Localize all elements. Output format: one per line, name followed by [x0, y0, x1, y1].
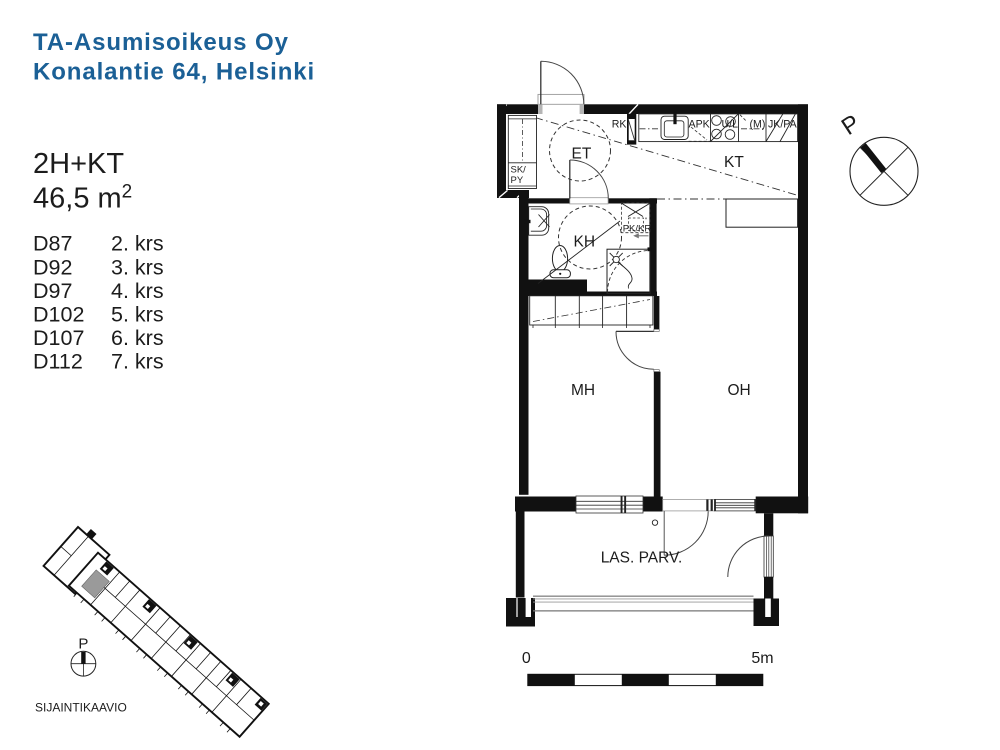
svg-text:D97: D97 — [33, 279, 72, 303]
svg-text:SK/: SK/ — [511, 165, 527, 176]
svg-text:U/L: U/L — [722, 118, 739, 130]
svg-text:MH: MH — [571, 382, 595, 399]
svg-text:D87: D87 — [33, 231, 72, 255]
svg-text:APK: APK — [689, 118, 710, 130]
svg-text:7. krs: 7. krs — [111, 350, 164, 374]
svg-text:(M): (M) — [750, 118, 766, 130]
svg-text:JK/PA: JK/PA — [768, 118, 798, 130]
svg-text:D102: D102 — [33, 302, 84, 326]
svg-text:5m: 5m — [751, 650, 773, 667]
svg-text:0: 0 — [522, 650, 531, 667]
svg-text:PY: PY — [511, 175, 524, 186]
svg-text:P: P — [78, 636, 88, 653]
svg-text:KT: KT — [724, 154, 744, 171]
svg-text:D107: D107 — [33, 326, 84, 350]
svg-text:6. krs: 6. krs — [111, 326, 164, 350]
svg-text:4. krs: 4. krs — [111, 279, 164, 303]
svg-text:KH: KH — [574, 233, 596, 250]
svg-text:TA-Asumisoikeus Oy: TA-Asumisoikeus Oy — [33, 29, 289, 56]
svg-text:5. krs: 5. krs — [111, 302, 164, 326]
svg-text:RK: RK — [612, 119, 627, 131]
svg-text:2H+KT: 2H+KT — [33, 148, 124, 180]
svg-text:2. krs: 2. krs — [111, 231, 164, 255]
svg-text:LAS. PARV.: LAS. PARV. — [601, 550, 683, 567]
svg-text:3. krs: 3. krs — [111, 255, 164, 279]
svg-text:OH: OH — [728, 382, 751, 399]
svg-text:Konalantie 64, Helsinki: Konalantie 64, Helsinki — [33, 59, 315, 86]
svg-text:ET: ET — [572, 145, 592, 162]
svg-text:SIJAINTIKAAVIO: SIJAINTIKAAVIO — [35, 700, 127, 714]
svg-text:D112: D112 — [33, 350, 83, 374]
svg-text:46,5 m2: 46,5 m2 — [33, 182, 132, 215]
svg-text:PK/KR: PK/KR — [623, 223, 652, 234]
svg-text:D92: D92 — [33, 255, 72, 279]
